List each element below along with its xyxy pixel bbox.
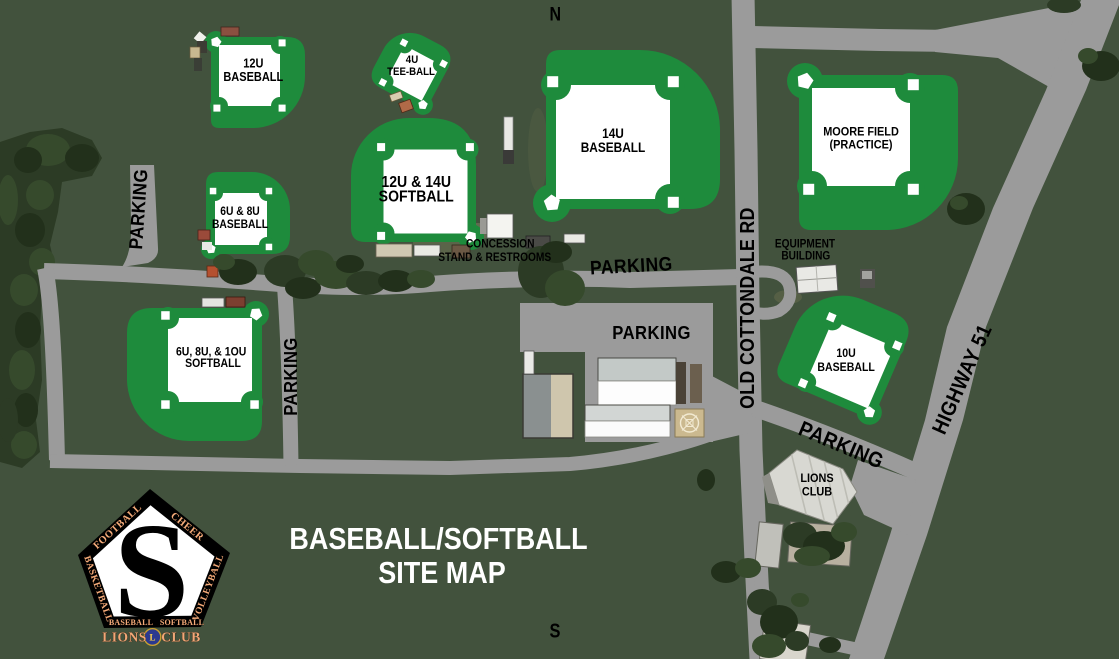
svg-text:10U: 10U — [836, 348, 855, 361]
svg-text:BASEBALL: BASEBALL — [109, 618, 153, 627]
svg-text:S: S — [550, 619, 561, 642]
svg-text:SITE MAP: SITE MAP — [378, 557, 505, 591]
svg-text:SOFTBALL: SOFTBALL — [379, 188, 454, 206]
svg-text:BASEBALL/SOFTBALL: BASEBALL/SOFTBALL — [289, 523, 587, 557]
svg-text:BASEBALL: BASEBALL — [581, 139, 646, 155]
svg-text:TEE-BALL: TEE-BALL — [387, 66, 435, 78]
svg-text:SOFTBALL: SOFTBALL — [160, 618, 204, 627]
svg-text:BASEBALL: BASEBALL — [817, 361, 875, 374]
svg-text:12U: 12U — [243, 57, 263, 71]
svg-text:CLUB: CLUB — [802, 485, 832, 499]
svg-text:4U: 4U — [406, 54, 418, 66]
svg-text:L: L — [149, 633, 155, 643]
svg-text:LIONS: LIONS — [800, 471, 833, 485]
svg-text:EQUIPMENT: EQUIPMENT — [775, 238, 836, 251]
svg-text:SOFTBALL: SOFTBALL — [185, 358, 241, 371]
svg-text:CLUB: CLUB — [161, 630, 201, 645]
svg-text:BUILDING: BUILDING — [781, 250, 830, 263]
svg-text:N: N — [550, 3, 562, 25]
svg-text:BASEBALL: BASEBALL — [223, 70, 283, 84]
svg-text:LIONS: LIONS — [102, 630, 147, 645]
svg-text:STAND & RESTROOMS: STAND & RESTROOMS — [438, 252, 551, 265]
svg-text:6U & 8U: 6U & 8U — [220, 206, 260, 219]
svg-text:(PRACTICE): (PRACTICE) — [830, 138, 893, 152]
svg-text:PARKING: PARKING — [280, 337, 301, 416]
svg-text:CONCESSION: CONCESSION — [466, 238, 535, 251]
svg-text:PARKING: PARKING — [612, 322, 691, 343]
svg-text:BASEBALL: BASEBALL — [212, 219, 268, 232]
svg-text:PARKING: PARKING — [589, 252, 673, 278]
svg-text:MOORE FIELD: MOORE FIELD — [823, 125, 899, 139]
svg-text:OLD COTTONDALE RD: OLD COTTONDALE RD — [736, 207, 758, 409]
